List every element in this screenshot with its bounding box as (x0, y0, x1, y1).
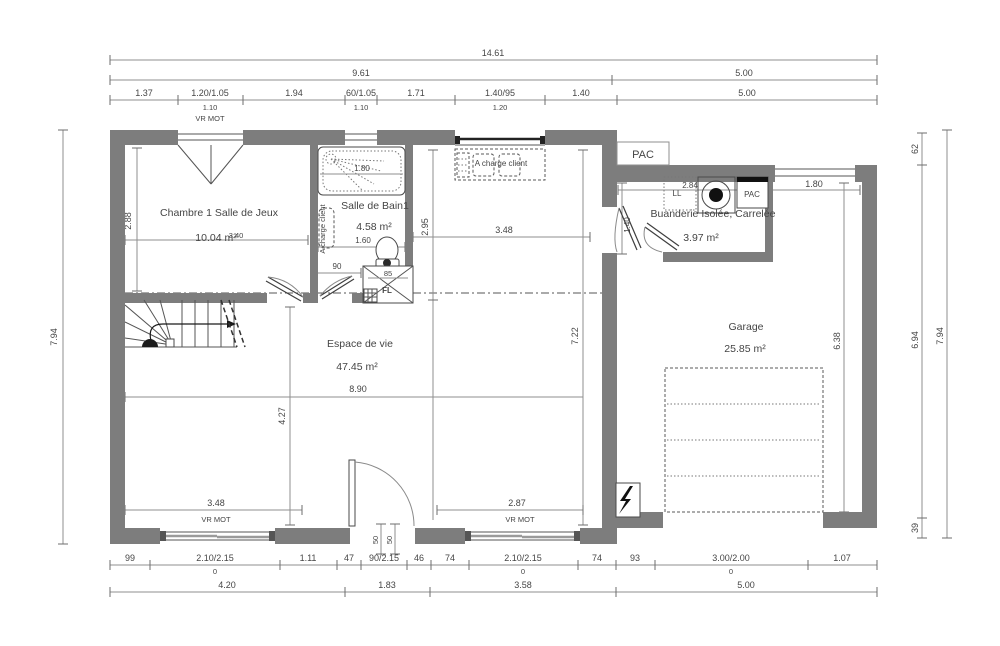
dim-right-top: 62 (910, 144, 920, 154)
window-jamb (269, 531, 275, 541)
dim-wc-width: 85 (384, 269, 392, 278)
wall-stub (352, 293, 363, 303)
floor-plan-page: 14.61 9.61 5.00 1.37 1.20/1.05 1.94 60/1… (0, 0, 1000, 646)
window-kitchen-jamb (540, 136, 545, 144)
wall-bottom (275, 528, 350, 544)
dim-living-left-height: 4.27 (277, 407, 287, 425)
dim-top-sub: 1.10 (354, 103, 369, 112)
window-kitchen-jamb (455, 136, 460, 144)
pac-unit-label: PAC (744, 190, 760, 199)
door-garage-leaf (645, 223, 679, 250)
dim-bottom-seg: 1.11 (300, 553, 317, 563)
floor-plan-canvas: 14.61 9.61 5.00 1.37 1.20/1.05 1.94 60/1… (0, 0, 1000, 646)
dim-bottom-seg: 47 (344, 553, 354, 563)
dims-bottom: 99 2.10/2.15 1.11 47 90/2.15 46 74 2.10/… (110, 553, 877, 597)
water-heater-core (709, 188, 723, 202)
dim-top-seg: 1.40 (572, 88, 590, 98)
dim-bottom-group: 3.58 (514, 580, 532, 590)
dim-top-seg: 1.40/95 (485, 88, 515, 98)
wall-right-house (602, 253, 617, 528)
window-shutter-label: VR MOT (505, 515, 535, 524)
dim-bottom-sub: 0 (213, 567, 217, 576)
dim-bottom-group: 5.00 (737, 580, 755, 590)
dim-bottom-seg: 99 (125, 553, 135, 563)
dim-door-sill: 50 (385, 536, 394, 544)
dims-right: 62 6.94 39 7.94 (910, 130, 952, 538)
pac-tag-label: PAC (632, 149, 654, 161)
dim-hall-door: 90 (333, 262, 342, 271)
room-name-buanderie: Buanderie Isolée, Carrelée (651, 208, 776, 220)
window-living-left-sash (164, 536, 271, 537)
wall-top (377, 130, 455, 145)
window-jamb (574, 531, 580, 541)
dim-left-overall: 7.94 (49, 328, 59, 346)
pac-unit-top (737, 177, 768, 182)
dim-bottom-group: 1.83 (378, 580, 396, 590)
window-jamb (160, 531, 166, 541)
dim-living-height: 7.22 (570, 327, 580, 345)
wall-garage-right (862, 165, 877, 528)
dim-top-seg: 5.00 (738, 88, 756, 98)
dim-bottom-seg: 1.07 (833, 553, 851, 563)
dim-top-sub: 1.10 (203, 103, 218, 112)
wall-buanderie-bottom (663, 252, 773, 262)
door-buanderie-swing (615, 208, 619, 252)
room-area-chambre: 10.04 m² (195, 232, 237, 244)
stair-pole (142, 339, 158, 347)
washing-machine-label: LL (673, 189, 682, 198)
room-labels: Chambre 1 Salle de Jeux 10.04 m² Salle d… (160, 200, 776, 373)
dim-top-group-right: 5.00 (735, 68, 753, 78)
wall-top (110, 130, 178, 145)
dim-buanderie-width: 2.84 (682, 181, 698, 190)
dim-garage-height: 6.38 (832, 332, 842, 350)
dim-bottom-seg: 2.10/2.15 (504, 553, 542, 563)
dim-bottom-seg: 93 (630, 553, 640, 563)
dim-bottom-seg: 3.00/2.00 (712, 553, 750, 563)
stair-winders (125, 300, 172, 345)
window-garage (775, 169, 855, 176)
window-chambre (178, 134, 243, 140)
room-name-chambre: Chambre 1 Salle de Jeux (160, 207, 279, 219)
door-chambre-leaf (266, 277, 303, 301)
window-living-right-sash (469, 536, 576, 537)
wall-garage-bottom (823, 512, 877, 528)
wall-stub (303, 293, 310, 303)
wall-bottom (580, 528, 617, 544)
dim-top-overall: 14.61 (482, 48, 505, 58)
dim-top-seg: 1.37 (135, 88, 153, 98)
window-shutter-label: VR MOT (195, 114, 225, 123)
wall-chambre-south (110, 293, 267, 303)
window-shutter-label: VR MOT (201, 515, 231, 524)
dim-top-seg: 1.71 (407, 88, 425, 98)
dim-bath-height: 2.95 (420, 218, 430, 236)
stair-newel (166, 339, 174, 347)
dim-bottom-seg: 74 (592, 553, 602, 563)
wall-right-house (602, 130, 617, 207)
dims-left: 7.94 (49, 130, 68, 544)
dim-living-width: 8.90 (349, 384, 367, 394)
window-chambre-swing (178, 145, 243, 184)
dim-right-bottom: 39 (910, 523, 920, 533)
dim-top-sub: 1.20 (493, 103, 508, 112)
room-name-bain: Salle de Bain1 (341, 200, 409, 212)
dim-window-right: 2.87 (508, 498, 526, 508)
dim-right-overall: 7.94 (935, 327, 945, 345)
window-jamb (465, 531, 471, 541)
window-bath (345, 134, 377, 140)
floor-drain-label: FL (382, 286, 392, 295)
dim-bath-width: 1.60 (355, 236, 371, 245)
dim-bottom-seg: 2.10/2.15 (196, 553, 234, 563)
room-area-espace: 47.45 m² (336, 361, 378, 373)
stair-arrow-head (227, 320, 236, 328)
wall-bottom (110, 528, 160, 544)
dim-bottom-sub: 0 (729, 567, 733, 576)
room-name-garage: Garage (728, 321, 763, 333)
garage-door-panels (667, 404, 821, 476)
dim-top-group-left: 9.61 (352, 68, 370, 78)
dim-bottom-group: 4.20 (218, 580, 236, 590)
staircase (125, 300, 245, 347)
wall-bottom (415, 528, 465, 544)
door-bath-leaf (320, 276, 354, 299)
dim-bottom-sub: 0 (521, 567, 525, 576)
dim-top-seg: 1.94 (285, 88, 303, 98)
dim-door-sill: 50 (371, 536, 380, 544)
entrance-door-swing (355, 462, 414, 526)
dims-top: 14.61 9.61 5.00 1.37 1.20/1.05 1.94 60/1… (110, 48, 877, 123)
dim-tub: 1.80 (354, 164, 370, 173)
client-supply-note: A charge client (475, 159, 528, 168)
dim-window-left: 3.48 (207, 498, 225, 508)
dim-right-middle: 6.94 (910, 331, 920, 349)
room-area-buanderie: 3.97 m² (683, 232, 719, 244)
stair-direction-arrow (150, 324, 227, 341)
dim-garage-window: 1.80 (805, 179, 823, 189)
room-name-espace: Espace de vie (327, 338, 393, 350)
dim-bottom-seg: 74 (445, 553, 455, 563)
door-garage-swing (644, 227, 662, 252)
dim-kitchen-width: 3.48 (495, 225, 513, 235)
room-area-garage: 25.85 m² (724, 343, 766, 355)
dim-top-seg: 1.20/1.05 (191, 88, 229, 98)
room-area-bain: 4.58 m² (356, 221, 392, 233)
dim-top-seg: 60/1.05 (346, 88, 376, 98)
wall-top (243, 130, 345, 145)
client-supply-note: A charge client (318, 203, 327, 253)
dim-bottom-seg: 46 (414, 553, 424, 563)
wall-bath-left (310, 145, 318, 303)
wall-left (110, 130, 125, 544)
entrance-door-leaf (349, 460, 355, 526)
